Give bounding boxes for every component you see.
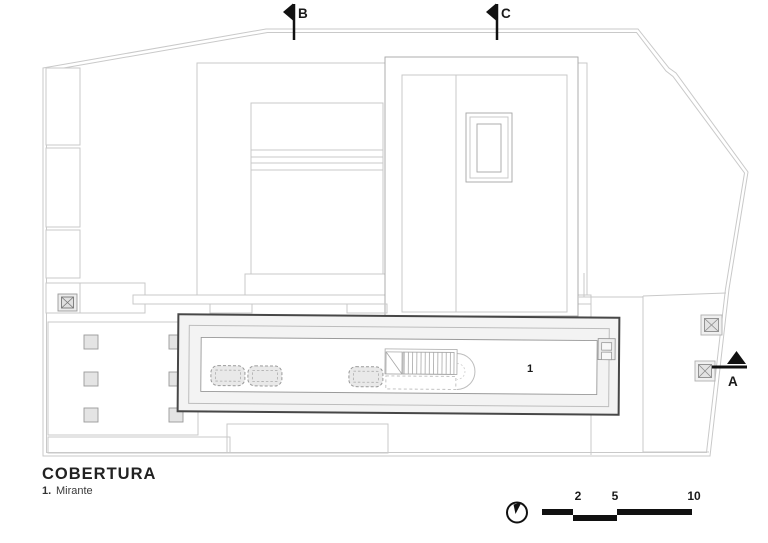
- roof-hatch-strip: [347, 304, 387, 313]
- paving-hatch-left: [48, 437, 230, 453]
- title-block: COBERTURA 1. Mirante: [42, 465, 156, 497]
- tower-volume: [385, 57, 578, 316]
- legend-item: 1. Mirante: [42, 485, 93, 497]
- left-panel-strip: [46, 68, 145, 313]
- column-marker-icon: [701, 315, 722, 335]
- skylight-opening: [349, 367, 383, 387]
- tower-skylight: [466, 113, 512, 182]
- section-label-b: B: [298, 6, 308, 21]
- scale-bar-segment: [573, 515, 617, 521]
- column-marker-icon: [695, 361, 715, 381]
- mirante-structure: 1: [178, 314, 620, 414]
- section-marker-c: C: [486, 4, 511, 41]
- paving-hatch-center: [227, 424, 388, 453]
- scale-bar: 2 5 10: [542, 489, 701, 521]
- terrace-column: [84, 335, 98, 349]
- skylight-opening: [248, 366, 282, 386]
- terrace-column: [84, 408, 98, 422]
- roof-plan-page: 1 B C A COBERTURA: [0, 0, 768, 543]
- north-arrow-icon: [507, 503, 527, 523]
- section-marker-b: B: [283, 4, 308, 41]
- scale-tick-label: 10: [687, 489, 701, 503]
- scale-bar-segment: [542, 509, 573, 515]
- legend-number: 1.: [42, 485, 51, 497]
- terrace-column: [84, 372, 98, 386]
- skylight-opening: [211, 366, 245, 386]
- left-terrace: [48, 322, 198, 435]
- section-cut-icon: [486, 4, 497, 41]
- section-label-a: A: [728, 374, 738, 389]
- section-cut-icon: [283, 4, 294, 41]
- room-number-label: 1: [527, 363, 533, 375]
- scale-tick-label: 5: [612, 489, 619, 503]
- roof-plan-drawing: 1 B C A COBERTURA: [0, 0, 768, 543]
- scale-bar-segment: [617, 509, 692, 515]
- section-label-c: C: [501, 6, 511, 21]
- legend-label: Mirante: [56, 485, 93, 497]
- roof-hatch-strip: [210, 304, 252, 313]
- scale-tick-label: 2: [575, 489, 582, 503]
- roof-fixture: [598, 339, 615, 360]
- column-marker-icon: [58, 294, 77, 311]
- drawing-title: COBERTURA: [42, 465, 156, 483]
